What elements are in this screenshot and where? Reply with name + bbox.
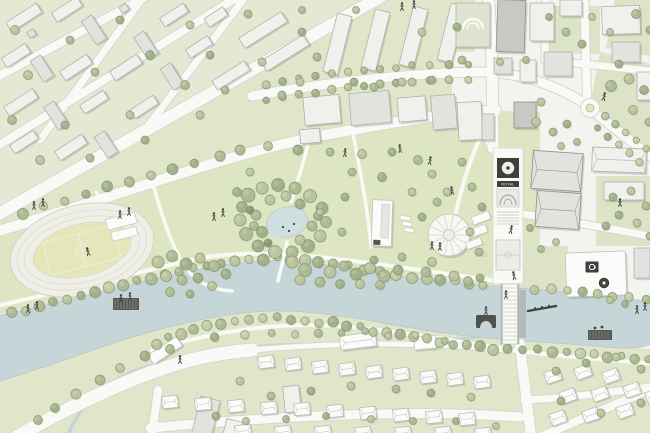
block-c-5 [431,94,460,132]
pavilion-hub [444,230,455,241]
house [392,367,411,383]
kiosk-rooflight [380,204,389,238]
roundabout-layer [581,99,600,118]
block-c-4 [299,128,322,146]
house [234,424,253,433]
swimmer [594,327,597,330]
house [338,362,357,378]
swimming-raft [113,298,139,310]
house [365,365,384,381]
swimmer [601,326,604,329]
block-c-1 [303,94,343,127]
roundabout-island [586,104,594,112]
house [446,372,465,388]
house [284,357,303,373]
duck [288,230,290,232]
house [161,395,180,411]
house [274,425,293,433]
house [257,355,276,371]
house [227,399,246,415]
hall-e-2 [535,191,583,232]
house [419,370,438,386]
royal-sign-text: ROYAL [501,183,514,187]
house [392,408,411,424]
block-ne-2 [530,3,556,43]
rower [548,305,550,307]
arc-roof-building [456,3,492,49]
hall-e-1 [531,150,585,194]
site-plan: ROYAL [0,0,650,433]
lawn-cafe [522,246,568,296]
block-ne-4 [560,0,584,18]
block-e-2 [634,248,650,280]
block-ne-3 [544,52,574,78]
pond-lobe [267,223,287,237]
house [314,425,333,433]
house [194,397,213,413]
swim-platform [588,330,612,340]
rower [541,306,543,308]
house [425,410,444,426]
house [293,402,312,418]
kiosk-unit [373,240,380,245]
house [311,360,330,376]
block-c-6 [457,101,485,142]
masterplan-svg: ROYAL [0,0,650,433]
block-c-3 [397,96,429,125]
street-ne-vertical [584,0,587,98]
bridge-shadow [519,290,526,338]
park-kiosk [371,200,394,249]
house [473,375,492,391]
house [260,401,279,417]
block-ne-1 [496,0,528,55]
rower [534,307,536,309]
coffee-icon [586,262,599,273]
house [458,412,477,428]
river-bridge [501,284,519,344]
block-c-7 [482,114,496,142]
duck [293,223,295,225]
duck [282,226,284,228]
block-c-2 [349,90,394,128]
